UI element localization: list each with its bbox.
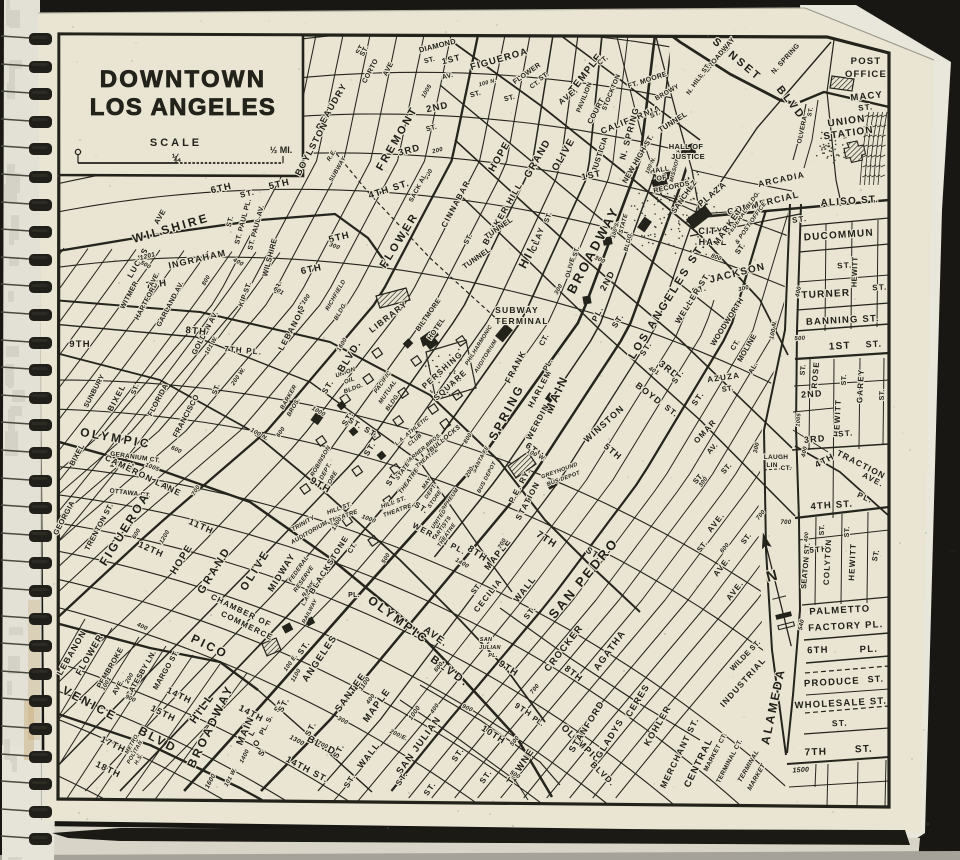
svg-text:LIN: LIN bbox=[766, 462, 777, 469]
svg-text:ST.: ST. bbox=[841, 374, 849, 385]
svg-text:700: 700 bbox=[781, 520, 792, 526]
svg-text:PL.: PL. bbox=[488, 653, 498, 659]
svg-text:ST.: ST. bbox=[855, 744, 873, 756]
svg-text:½ MI.: ½ MI. bbox=[270, 145, 293, 155]
svg-text:SAN: SAN bbox=[480, 637, 493, 643]
svg-text:PL.: PL. bbox=[860, 644, 879, 656]
svg-text:500: 500 bbox=[794, 336, 806, 343]
svg-text:ST.: ST. bbox=[865, 339, 882, 350]
svg-text:PL.: PL. bbox=[348, 592, 360, 599]
svg-text:ST.: ST. bbox=[838, 428, 854, 438]
svg-text:JUSTICE: JUSTICE bbox=[671, 152, 705, 161]
svg-text:ST.: ST. bbox=[872, 283, 888, 293]
svg-text:ST.: ST. bbox=[879, 389, 887, 400]
svg-text:8TH: 8TH bbox=[185, 325, 208, 338]
svg-text:DOWNTOWN: DOWNTOWN bbox=[100, 66, 266, 93]
svg-text:POST: POST bbox=[851, 56, 882, 67]
svg-text:HALL OF: HALL OF bbox=[669, 142, 704, 151]
svg-text:1005: 1005 bbox=[795, 412, 802, 427]
svg-text:JULIAN: JULIAN bbox=[479, 645, 501, 651]
svg-text:SCALE: SCALE bbox=[150, 137, 202, 149]
svg-text:7TH: 7TH bbox=[804, 747, 827, 759]
svg-text:TERMINAL: TERMINAL bbox=[495, 316, 549, 326]
svg-text:1500: 1500 bbox=[792, 767, 809, 775]
svg-text:3RD: 3RD bbox=[804, 433, 826, 445]
svg-text:ST.: ST. bbox=[844, 526, 852, 537]
svg-text:ST.: ST. bbox=[867, 674, 884, 685]
svg-text:LOS ANGELES: LOS ANGELES bbox=[90, 94, 277, 121]
svg-text:SUBWAY: SUBWAY bbox=[495, 305, 539, 315]
svg-text:GAREY: GAREY bbox=[855, 368, 866, 403]
svg-text:CT.: CT. bbox=[781, 465, 792, 472]
svg-text:400: 400 bbox=[803, 532, 810, 544]
svg-text:2ND: 2ND bbox=[801, 388, 823, 399]
svg-text:1ST: 1ST bbox=[829, 340, 851, 352]
svg-text:ST.: ST. bbox=[858, 102, 874, 113]
svg-text:OFFICE: OFFICE bbox=[845, 69, 887, 80]
svg-text:HEWITT: HEWITT bbox=[849, 256, 859, 287]
svg-text:ST.: ST. bbox=[819, 524, 827, 535]
svg-text:ST.: ST. bbox=[721, 383, 734, 394]
svg-text:LAUGH: LAUGH bbox=[764, 454, 789, 461]
svg-text:6TH: 6TH bbox=[807, 645, 829, 657]
svg-text:ST.: ST. bbox=[800, 364, 808, 376]
svg-text:9TH: 9TH bbox=[69, 339, 91, 350]
svg-text:ST.: ST. bbox=[832, 718, 848, 729]
